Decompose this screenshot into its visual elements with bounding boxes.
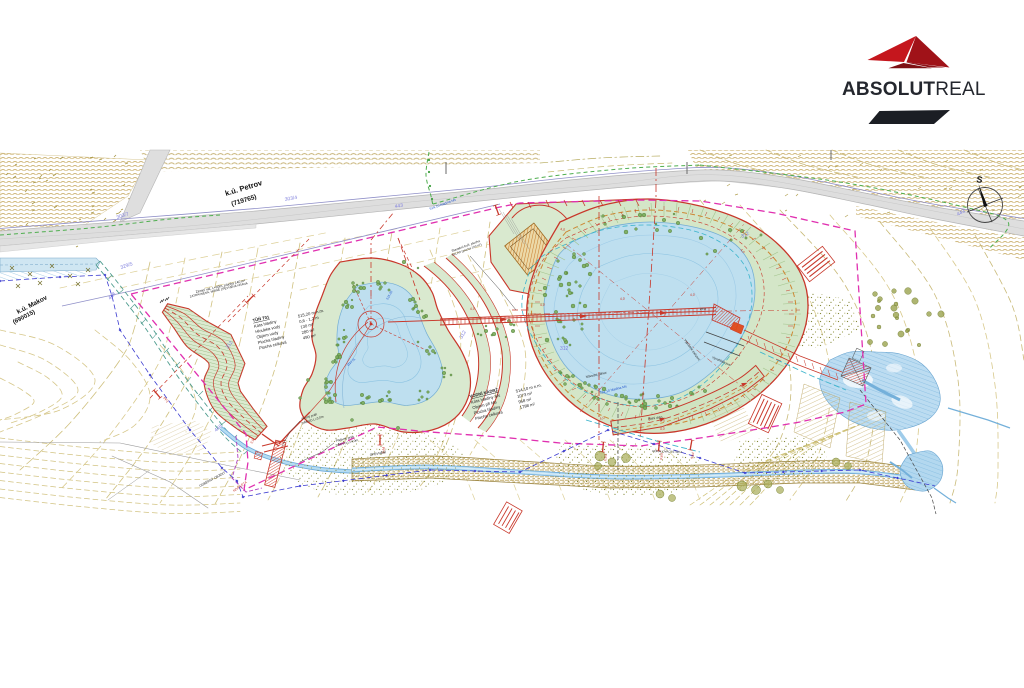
svg-text:ZTO: ZTO [700, 307, 707, 311]
svg-text:312: 312 [560, 346, 569, 352]
svg-text:ABSOLUTREAL: ABSOLUTREAL [842, 79, 986, 100]
svg-text:4,0: 4,0 [540, 303, 545, 307]
svg-text:PF4: PF4 [659, 453, 664, 460]
svg-text:PF3: PF3 [603, 454, 608, 461]
svg-text:4,0: 4,0 [620, 297, 625, 301]
svg-text:4,0: 4,0 [660, 427, 665, 431]
svg-text:4,0: 4,0 [690, 293, 695, 297]
svg-text:4,0: 4,0 [560, 227, 566, 232]
svg-text:4,0: 4,0 [470, 307, 475, 311]
